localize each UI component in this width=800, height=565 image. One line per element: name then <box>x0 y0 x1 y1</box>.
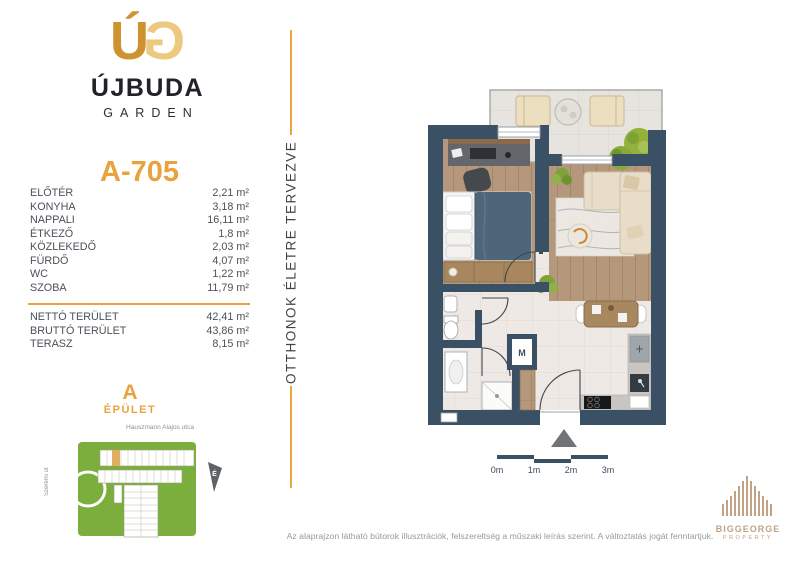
room-row: WC1,22 m² <box>30 268 249 282</box>
terrace-armchair <box>590 96 624 126</box>
biggeorge-building-icon <box>718 472 778 518</box>
room-row: FÜRDŐ4,07 m² <box>30 255 249 269</box>
room-area: 1,8 m² <box>218 228 249 242</box>
terrace-table <box>555 99 581 125</box>
total-row: NETTÓ TERÜLET42,41 m² <box>30 311 249 325</box>
site-map-small-block <box>114 485 122 503</box>
toilet <box>444 321 458 339</box>
wardrobe <box>444 262 532 282</box>
monogram-u: Ú <box>110 11 146 71</box>
scale-segment <box>571 455 608 459</box>
gold-divider <box>28 303 250 305</box>
highlighted-unit <box>112 450 120 466</box>
room-row: SZOBA11,79 m² <box>30 282 249 296</box>
room-label: ELŐTÉR <box>30 187 73 201</box>
ug-monogram-icon: ÚG <box>60 14 235 68</box>
room-label: FÜRDŐ <box>30 255 68 269</box>
room-label: ÉTKEZŐ <box>30 228 73 242</box>
compass-letter: É <box>212 469 217 478</box>
entrance-arrow-icon <box>551 429 577 447</box>
site-map <box>62 434 208 540</box>
total-label: TERASZ <box>30 338 73 352</box>
room-row: ÉTKEZŐ1,8 m² <box>30 228 249 242</box>
total-area: 8,15 m² <box>212 338 249 352</box>
room-area: 1,22 m² <box>212 268 249 282</box>
tagline: OTTHONOK ÉLETRE TERVEZVE <box>281 142 301 382</box>
mechanical-room-label: M <box>518 348 526 358</box>
total-area: 42,41 m² <box>206 311 249 325</box>
pouf-table <box>568 224 592 248</box>
room-area: 3,18 m² <box>212 201 249 215</box>
scale-label: 3m <box>594 465 622 475</box>
bathroom-window <box>441 413 457 422</box>
gold-vertical-line-top <box>290 30 292 135</box>
biggeorge-logo: BIGGEORGE PROPERTY <box>700 472 796 541</box>
brand-name: ÚJBUDA <box>60 74 235 103</box>
biggeorge-sub: PROPERTY <box>700 535 796 541</box>
total-label: BRUTTÓ TERÜLET <box>30 325 126 339</box>
street-label-top: Hauszmann Alajos utca <box>90 424 230 431</box>
street-label-left: Szerémi út <box>44 452 50 512</box>
room-area: 4,07 m² <box>212 255 249 269</box>
total-label: NETTÓ TERÜLET <box>30 311 119 325</box>
room-label: KONYHA <box>30 201 76 215</box>
terrace-armchair <box>516 96 550 126</box>
room-row: KONYHA3,18 m² <box>30 201 249 215</box>
totals-list: NETTÓ TERÜLET42,41 m² BRUTTÓ TERÜLET43,8… <box>30 311 249 352</box>
disclaimer-text: Az alaprajzon látható bútorok illusztrác… <box>260 531 740 541</box>
room-area: 2,21 m² <box>212 187 249 201</box>
room-row: ELŐTÉR2,21 m² <box>30 187 249 201</box>
room-label: WC <box>30 268 48 282</box>
room-row: NAPPALI16,11 m² <box>30 214 249 228</box>
scale-bar: 0m 1m 2m 3m <box>483 452 623 480</box>
room-list: ELŐTÉR2,21 m² KONYHA3,18 m² NAPPALI16,11… <box>30 187 249 295</box>
total-row: BRUTTÓ TERÜLET43,86 m² <box>30 325 249 339</box>
monogram-g: G <box>146 14 185 68</box>
wc-fixtures <box>444 296 458 339</box>
brand-logo: ÚG ÚJBUDA GARDEN <box>60 14 235 120</box>
brand-subtitle: GARDEN <box>60 106 242 120</box>
total-row: TERASZ8,15 m² <box>30 338 249 352</box>
floor-plan: M <box>428 86 666 425</box>
gold-vertical-line-bottom <box>290 386 292 488</box>
building-label: ÉPÜLET <box>60 404 200 416</box>
wc-basin <box>444 296 457 312</box>
building-block: A ÉPÜLET <box>60 381 200 416</box>
total-area: 43,86 m² <box>206 325 249 339</box>
building-letter: A <box>60 381 200 404</box>
room-area: 11,79 m² <box>207 282 249 296</box>
scale-segment <box>497 455 534 459</box>
scale-segment <box>534 459 571 463</box>
unit-id: A-705 <box>30 156 249 189</box>
room-row: KÖZLEKEDŐ2,03 m² <box>30 241 249 255</box>
room-label: KÖZLEKEDŐ <box>30 241 96 255</box>
compass-north-icon: É <box>203 456 229 496</box>
room-area: 16,11 m² <box>207 214 249 228</box>
dining-set <box>576 301 646 327</box>
scale-label: 0m <box>483 465 511 475</box>
kitchen-sink <box>630 374 649 392</box>
room-label: NAPPALI <box>30 214 75 228</box>
kitchen-cabinet <box>630 396 649 408</box>
hall-wardrobe <box>520 370 535 410</box>
scale-label: 2m <box>557 465 585 475</box>
scale-label: 1m <box>520 465 548 475</box>
bed <box>443 192 531 260</box>
room-label: SZOBA <box>30 282 67 296</box>
room-area: 2,03 m² <box>212 241 249 255</box>
floorplan-datasheet: ÚG ÚJBUDA GARDEN A-705 ELŐTÉR2,21 m² KON… <box>0 0 800 565</box>
biggeorge-name: BIGGEORGE <box>700 524 796 534</box>
